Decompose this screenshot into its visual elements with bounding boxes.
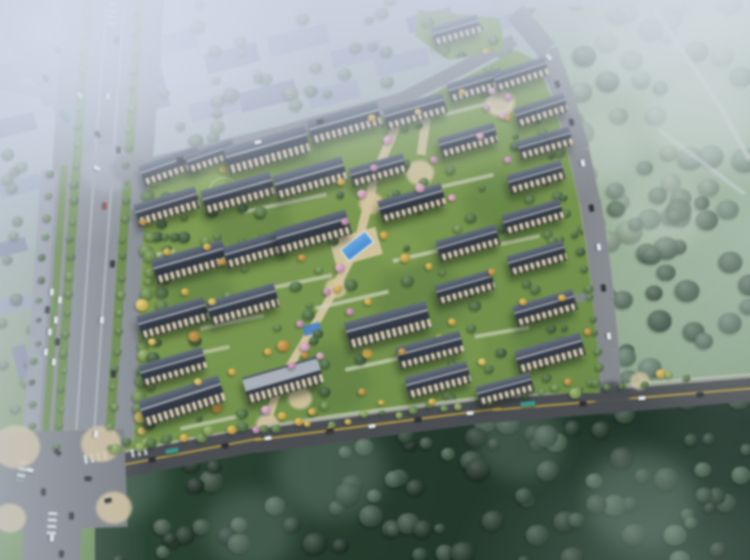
- axis-path-box: [180, 345, 230, 359]
- axis-path-box: [279, 328, 315, 380]
- tree: [397, 429, 414, 444]
- tree: [629, 218, 643, 231]
- tree: [559, 111, 584, 134]
- accent-trees-blob: [430, 156, 438, 163]
- accent-trees-blob: [148, 338, 156, 345]
- tree: [488, 439, 501, 451]
- tree: [207, 207, 218, 217]
- tree: [196, 0, 205, 8]
- tree: [134, 12, 139, 17]
- axis-path-box: [309, 293, 336, 332]
- tree: [365, 16, 374, 24]
- tree: [568, 512, 584, 527]
- tree: [213, 109, 223, 118]
- accent-trees-blob: [415, 109, 422, 115]
- building: [430, 14, 481, 45]
- tree: [248, 144, 257, 152]
- accent-trees-blob: [228, 368, 236, 375]
- accent-trees-blob: [181, 288, 189, 295]
- building-roof: [242, 357, 322, 397]
- layer-lawn-shading: [0, 0, 750, 560]
- tree: [260, 425, 269, 433]
- tree: [277, 412, 286, 420]
- axis-path-box: [135, 249, 175, 261]
- tree: [553, 237, 569, 251]
- accent-trees-blob: [584, 328, 592, 335]
- layer-ne-parcel-trees: [0, 0, 750, 560]
- vehicle: [46, 306, 50, 313]
- tree: [588, 379, 596, 386]
- building-facade: [143, 392, 226, 427]
- tree: [108, 444, 113, 449]
- tree: [534, 76, 556, 96]
- tree: [420, 438, 433, 450]
- tree: [738, 274, 750, 295]
- tree: [460, 451, 482, 471]
- tree: [441, 416, 448, 423]
- tree: [147, 352, 160, 364]
- accent-trees-blob: [316, 352, 324, 359]
- tree: [152, 57, 161, 65]
- tree: [115, 349, 122, 355]
- tree: [65, 310, 71, 315]
- plazas-blob: [489, 93, 511, 113]
- tree: [149, 178, 158, 186]
- plazas-blob: [485, 90, 515, 117]
- building-roof: [138, 375, 224, 419]
- building-roof: [307, 101, 381, 138]
- layer-roads: [0, 0, 750, 560]
- tree: [207, 460, 222, 473]
- tree: [676, 388, 700, 410]
- roads-box: [0, 429, 128, 531]
- building-facade: [496, 68, 549, 91]
- tree: [481, 89, 490, 97]
- tree: [9, 232, 19, 241]
- tree: [335, 286, 343, 293]
- city-blocks-box: [11, 344, 33, 380]
- tree: [740, 444, 750, 456]
- accent-trees-blob: [194, 378, 202, 385]
- tree: [515, 488, 533, 504]
- tree: [667, 209, 682, 223]
- tree: [123, 162, 130, 168]
- building: [512, 289, 577, 326]
- road-patches-blob: [594, 382, 630, 414]
- parkland-mist-blob: [645, 71, 750, 170]
- tree: [31, 358, 38, 364]
- accent-trees-blob: [459, 89, 466, 95]
- tree: [360, 411, 368, 418]
- tree: [339, 68, 352, 80]
- building-facade: [156, 256, 229, 285]
- tree: [369, 43, 378, 51]
- tree: [596, 32, 618, 52]
- tree: [11, 294, 23, 305]
- tree: [554, 172, 564, 181]
- tree: [462, 64, 470, 71]
- accent-trees-blob: [261, 406, 271, 415]
- city-blocks-box: [374, 47, 431, 78]
- tree: [466, 213, 477, 223]
- building-facade: [137, 200, 200, 226]
- tree: [37, 298, 43, 303]
- accent-trees-blob: [368, 114, 376, 121]
- road-patches-blob: [81, 426, 121, 462]
- tree: [301, 351, 309, 358]
- tree: [569, 302, 583, 315]
- tree: [131, 31, 137, 37]
- tree: [486, 399, 493, 406]
- tree: [260, 234, 268, 241]
- vehicle: [579, 401, 586, 405]
- vehicle: [76, 91, 83, 99]
- ne-parcel-trees-blob: [482, 48, 490, 55]
- tree: [132, 391, 146, 403]
- tree: [137, 427, 146, 435]
- tree: [255, 209, 265, 218]
- tree: [25, 6, 41, 20]
- building-roof: [184, 139, 236, 168]
- building-roof: [516, 126, 572, 154]
- vehicle: [115, 36, 119, 43]
- tree: [163, 532, 177, 545]
- tree: [591, 421, 610, 438]
- building-facade: [434, 26, 482, 46]
- tree: [154, 520, 172, 536]
- building-roof: [222, 230, 288, 263]
- parkland-paths-box: [722, 113, 750, 161]
- building: [138, 146, 203, 186]
- layer-ne-parcel: [0, 0, 750, 560]
- forest-mist-blob: [275, 421, 385, 520]
- tree: [236, 425, 247, 435]
- building-roof: [348, 153, 406, 182]
- tree: [43, 215, 51, 222]
- building-facade: [510, 172, 566, 194]
- tree: [152, 231, 164, 242]
- tree: [125, 144, 133, 151]
- tree: [156, 74, 164, 81]
- tree: [117, 379, 138, 398]
- tree: [110, 385, 115, 390]
- tree: [466, 459, 491, 481]
- vehicle: [254, 140, 262, 145]
- vehicle: [42, 489, 46, 496]
- city-blocks-box: [0, 52, 58, 85]
- building: [200, 171, 276, 214]
- tree: [193, 158, 199, 164]
- tree: [160, 89, 170, 98]
- tree: [391, 94, 400, 102]
- accent-trees-blob: [323, 288, 331, 295]
- tree: [610, 108, 628, 124]
- building: [272, 156, 348, 199]
- tree: [116, 420, 133, 435]
- tree: [446, 166, 455, 174]
- building: [506, 160, 565, 194]
- roads-box: [555, 97, 590, 153]
- tree: [569, 0, 584, 9]
- tree: [508, 72, 515, 78]
- tree: [683, 375, 690, 382]
- roads-box: [31, 0, 165, 475]
- tree: [650, 187, 668, 203]
- tree: [66, 118, 76, 127]
- tree: [146, 438, 156, 447]
- tree: [586, 495, 607, 514]
- tree: [159, 254, 169, 263]
- tree: [157, 326, 165, 333]
- tree: [612, 290, 632, 308]
- tree: [579, 213, 606, 237]
- tree: [620, 371, 639, 388]
- tree: [666, 199, 691, 222]
- building-roof: [501, 199, 563, 230]
- tree: [99, 436, 120, 454]
- tree: [653, 82, 668, 96]
- tree: [380, 120, 386, 126]
- tree: [148, 407, 161, 418]
- tree: [290, 99, 303, 111]
- tree: [255, 425, 277, 444]
- axis-path-box: [390, 73, 412, 132]
- axis-path-box: [475, 325, 530, 338]
- axis-path-box: [572, 291, 599, 304]
- roads-box: [588, 249, 615, 301]
- tree: [189, 134, 204, 147]
- axis-path-box: [445, 100, 494, 116]
- water-features-box: [215, 131, 229, 139]
- tree: [568, 121, 594, 144]
- axis-path-box: [353, 184, 377, 248]
- tree: [30, 401, 37, 407]
- tree: [367, 490, 381, 503]
- layer-fog-top-right: [0, 0, 750, 560]
- parkland-paths-box: [658, 128, 746, 196]
- tree: [601, 358, 617, 373]
- tree: [511, 142, 520, 150]
- building-roof: [344, 301, 430, 342]
- tree: [355, 438, 374, 455]
- roads-box-crosswalk: [130, 446, 149, 457]
- building-roof: [514, 333, 584, 368]
- tree: [435, 545, 454, 560]
- tree: [147, 383, 156, 391]
- tree: [664, 525, 687, 546]
- tree: [2, 174, 14, 185]
- layer-ne-parcel-lawn: [0, 0, 750, 560]
- tree: [57, 423, 63, 429]
- tree: [11, 404, 21, 413]
- tree: [385, 0, 396, 6]
- tree: [392, 190, 400, 197]
- tree: [699, 145, 724, 167]
- tree: [717, 200, 739, 220]
- vehicle: [117, 146, 121, 153]
- tree: [402, 276, 414, 287]
- accent-trees-blob: [326, 426, 334, 433]
- tree: [441, 448, 455, 461]
- forest-mist-blob: [585, 451, 695, 550]
- tree: [470, 300, 482, 310]
- tree: [664, 0, 688, 18]
- tree: [15, 162, 28, 173]
- tree: [717, 0, 741, 15]
- tree: [519, 133, 546, 157]
- vehicle: [58, 296, 62, 303]
- tree: [449, 361, 458, 369]
- tree: [344, 419, 351, 425]
- tree: [155, 545, 169, 558]
- building-roof: [200, 171, 274, 208]
- ne-parcel-trees-blob: [422, 17, 434, 28]
- road-patches-blob: [82, 145, 134, 192]
- layer-city-blocks: [0, 0, 750, 560]
- vehicle: [326, 428, 333, 432]
- tree: [129, 85, 135, 90]
- roads-box: [593, 299, 619, 351]
- building: [348, 153, 407, 187]
- roads-box: [74, 5, 107, 454]
- tree: [557, 236, 564, 243]
- building-facade: [479, 384, 535, 405]
- tree: [615, 405, 636, 424]
- tree: [176, 151, 185, 159]
- road-patches-blob: [111, 154, 143, 183]
- tree: [341, 475, 363, 495]
- tree: [162, 173, 171, 181]
- tree: [614, 194, 631, 209]
- tree: [166, 206, 174, 213]
- tree: [59, 387, 64, 392]
- roads-box: [0, 455, 58, 489]
- tree: [380, 46, 392, 57]
- vehicle: [94, 130, 101, 138]
- accent-trees-blob: [519, 298, 527, 305]
- tree: [592, 379, 601, 387]
- vehicle: [368, 424, 375, 428]
- tree: [145, 278, 153, 286]
- tree: [342, 123, 349, 129]
- building-facade: [140, 312, 210, 339]
- tree: [586, 294, 593, 300]
- axis-path-box: [430, 173, 494, 192]
- layer-fog-city: [0, 0, 750, 560]
- tree: [62, 368, 67, 373]
- tree: [362, 349, 372, 358]
- axis-path-box: [393, 241, 472, 263]
- tree: [425, 263, 432, 269]
- tree: [147, 203, 159, 214]
- tree: [353, 431, 360, 437]
- tree: [445, 343, 453, 350]
- tree: [148, 168, 157, 176]
- tree: [134, 411, 147, 423]
- tree: [695, 333, 713, 349]
- building: [222, 230, 290, 269]
- tree: [167, 384, 190, 405]
- tree: [0, 15, 6, 23]
- vehicle: [103, 202, 107, 209]
- tree: [406, 479, 424, 496]
- layer-buildings: [0, 0, 750, 560]
- layer-fog-left: [0, 0, 750, 560]
- vehicle: [555, 80, 561, 88]
- tree: [116, 329, 122, 335]
- tree: [447, 79, 454, 86]
- tree: [551, 384, 559, 391]
- axis-path-box: [500, 234, 540, 246]
- tree: [309, 128, 318, 136]
- tree: [83, 468, 103, 486]
- tree: [696, 211, 718, 231]
- tree: [662, 174, 680, 190]
- tree: [622, 524, 646, 546]
- tree: [164, 434, 172, 441]
- tree: [231, 152, 240, 160]
- tree: [46, 193, 53, 199]
- tree: [141, 438, 152, 448]
- layer-water-features: [0, 0, 750, 560]
- tree: [80, 68, 86, 73]
- building-facade: [279, 226, 352, 255]
- tree: [176, 122, 185, 130]
- tree: [66, 273, 74, 281]
- vehicle: [85, 476, 92, 480]
- city-blocks-box: [203, 42, 260, 74]
- tree: [213, 233, 222, 241]
- tree: [264, 497, 285, 516]
- city-blocks-box: [307, 79, 362, 109]
- accent-trees-blob: [208, 298, 216, 305]
- city-blocks-box: [266, 23, 329, 57]
- tree: [578, 383, 596, 400]
- building-facade: [311, 117, 383, 145]
- tree: [402, 125, 409, 131]
- road-patches-blob: [0, 504, 26, 533]
- tree: [71, 220, 76, 225]
- roads-box: [23, 170, 57, 430]
- lawn-shading-blob: [198, 167, 250, 214]
- forest-mist-blob: [475, 400, 565, 481]
- building-roof: [492, 57, 548, 87]
- accent-trees-blob: [415, 184, 425, 193]
- tree: [293, 133, 299, 138]
- city-blocks-box: [0, 111, 37, 140]
- tree: [222, 392, 237, 406]
- tree: [524, 390, 533, 398]
- tree: [0, 360, 9, 369]
- tree: [448, 84, 459, 94]
- plazas-blob: [256, 414, 280, 436]
- tree: [334, 381, 349, 394]
- tree: [137, 349, 150, 361]
- tree: [281, 235, 288, 241]
- tree: [297, 13, 310, 24]
- tree: [548, 153, 555, 159]
- tree: [665, 372, 673, 379]
- tree: [203, 426, 215, 437]
- tree: [519, 493, 535, 507]
- vehicle: [414, 417, 421, 421]
- tree: [219, 166, 228, 174]
- accent-trees-blob: [298, 254, 306, 261]
- tree: [20, 20, 33, 31]
- tree: [345, 279, 358, 290]
- tree: [163, 245, 171, 252]
- tree: [684, 434, 698, 446]
